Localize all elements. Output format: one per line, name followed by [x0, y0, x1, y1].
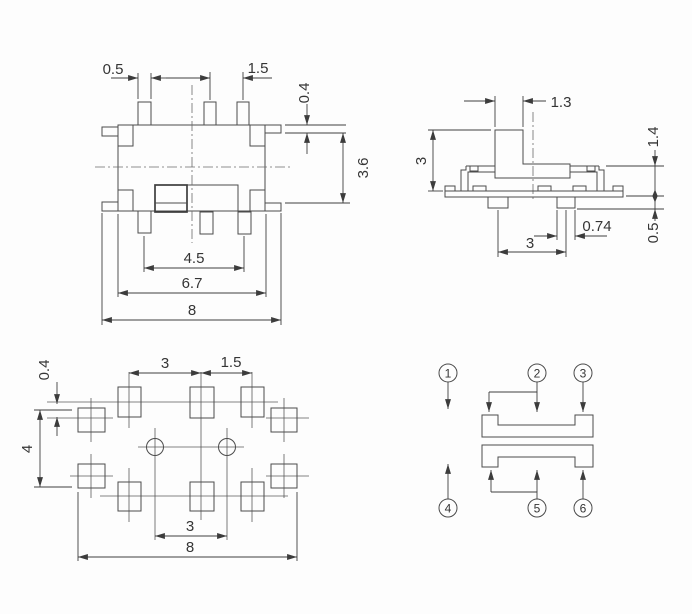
solder-pad — [190, 482, 214, 511]
footprint-view: 0.4 4 3 1.5 3 — [19, 354, 309, 561]
dim-pin-pitch: 1.5 — [186, 60, 272, 100]
contact-bump — [573, 186, 586, 191]
terminal-pin — [138, 102, 151, 125]
terminal-pin — [237, 102, 249, 125]
dim-foot-width: 0.74 — [534, 210, 612, 240]
pin-branch — [491, 492, 537, 499]
dim-pad-offset: 0.4 — [36, 360, 57, 436]
side-tab — [102, 127, 118, 136]
pin-number: 6 — [580, 502, 587, 516]
contact-bump — [473, 186, 486, 191]
terminal-pin — [204, 102, 216, 125]
dim-label: 8 — [188, 302, 196, 319]
dim-label: 6.7 — [182, 275, 203, 292]
left-wing-outer — [461, 166, 466, 191]
corner-block — [250, 190, 265, 211]
side-tab — [265, 203, 281, 211]
dim-label: 3.6 — [355, 158, 372, 179]
contact-bar-top — [482, 415, 593, 437]
dim-pin-span: 4.5 — [144, 236, 244, 272]
base-plate — [445, 191, 623, 197]
corner-block — [250, 125, 265, 146]
technical-drawing-page: 0.5 1.5 0.4 3.6 — [0, 0, 692, 614]
base-end-step — [613, 186, 623, 191]
dim-knob-width: 1.3 — [464, 94, 571, 127]
schematic: 1 2 3 4 5 6 — [439, 364, 593, 517]
right-wing-inner — [570, 172, 597, 191]
dim-label: 1.4 — [645, 127, 662, 148]
dim-pad-pitch: 3 1.5 — [129, 354, 252, 373]
wing-notch — [587, 166, 595, 171]
dim-label: 0.5 — [103, 61, 124, 78]
side-view: 1.3 3 1.4 0.5 — [413, 94, 664, 257]
wing-notch — [470, 166, 478, 171]
base-end-step — [445, 186, 455, 191]
pin-branch — [489, 382, 537, 392]
slider-knob — [155, 185, 187, 212]
dim-label: 3 — [186, 518, 194, 535]
solder-foot — [557, 197, 575, 208]
dim-body-height: 3.6 — [285, 133, 372, 203]
contact-bump — [538, 186, 551, 191]
dim-hole-pitch: 3 — [155, 518, 227, 536]
dim-label: 4 — [19, 445, 36, 453]
dim-tab-height: 0.4 — [285, 83, 346, 154]
dim-label: 8 — [186, 539, 194, 556]
side-tab — [265, 125, 281, 133]
pin-number: 5 — [534, 502, 541, 516]
pin-number: 2 — [534, 367, 541, 381]
dim-label: 1.5 — [221, 354, 242, 371]
dim-pad-span: 4 — [19, 410, 72, 487]
pin-number: 4 — [445, 502, 452, 516]
dim-label: 3 — [526, 235, 534, 252]
solder-foot — [488, 197, 508, 208]
slider-slot — [155, 185, 238, 211]
dim-label: 3 — [161, 355, 169, 372]
corner-block — [118, 125, 133, 146]
terminal-pin — [238, 212, 251, 234]
switch-drawing-svg: 0.5 1.5 0.4 3.6 — [0, 0, 692, 614]
dim-height: 3 — [413, 130, 491, 191]
dim-foot-pitch: 3 — [498, 210, 566, 257]
dim-label: 0.74 — [582, 218, 611, 235]
side-tab — [102, 202, 118, 211]
solder-pad — [241, 482, 264, 511]
solder-pad — [190, 387, 214, 418]
corner-block — [118, 190, 133, 211]
terminal-pin — [138, 211, 151, 233]
dim-label: 0.4 — [296, 83, 313, 104]
dim-label: 1.3 — [551, 94, 572, 111]
dim-overall-width: 8 — [102, 213, 281, 325]
pin-number: 1 — [445, 367, 452, 381]
dim-label: 0.5 — [645, 223, 662, 244]
dim-label: 4.5 — [184, 250, 205, 267]
dim-label: 1.5 — [248, 60, 269, 77]
right-wing-outer — [599, 166, 604, 191]
shared-dim-point — [652, 190, 657, 203]
solder-pad — [118, 482, 141, 511]
dim-label: 3 — [413, 157, 430, 165]
contact-bar-bottom — [482, 445, 593, 467]
dim-pin-width: 0.5 — [103, 61, 196, 99]
pin-number: 3 — [580, 367, 587, 381]
left-wing-inner — [468, 172, 495, 191]
actuator-knob — [495, 130, 570, 178]
dim-label: 0.4 — [36, 360, 53, 381]
terminal-pin — [200, 212, 213, 234]
switch-body-outline — [118, 125, 265, 211]
top-view: 0.5 1.5 0.4 3.6 — [95, 60, 372, 325]
side-pad — [78, 408, 105, 432]
